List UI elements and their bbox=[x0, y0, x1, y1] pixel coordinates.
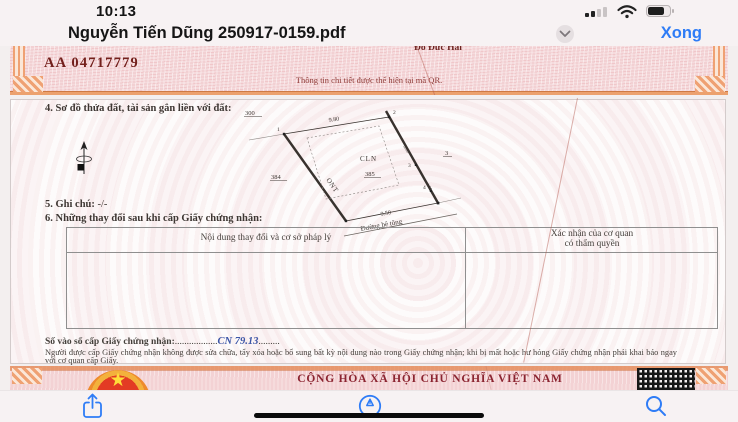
land-use-ont-label: ONT bbox=[324, 177, 340, 195]
done-button[interactable]: Xong bbox=[661, 24, 702, 43]
star-icon: ★ bbox=[109, 371, 126, 390]
signer-name: Đỗ Đức Hải bbox=[414, 46, 462, 53]
book-entry-line: Số vào sổ cấp Giấy chứng nhận:..........… bbox=[45, 336, 280, 347]
search-button[interactable] bbox=[644, 394, 668, 421]
changes-table: Nội dung thay đổi và cơ sở pháp lý Xác n… bbox=[66, 227, 718, 329]
section5-label: 5. Ghi chú: bbox=[45, 199, 95, 210]
serial-number: AA 04717779 bbox=[44, 55, 139, 72]
table-header-line bbox=[67, 252, 717, 253]
title-bar: Nguyễn Tiến Dũng 250917-0159.pdf Xong bbox=[0, 22, 738, 46]
search-icon bbox=[644, 394, 668, 418]
vertex-1-label: 1 bbox=[277, 127, 280, 133]
chevron-down-icon bbox=[559, 30, 571, 38]
section4-title: 4. Sơ đồ thửa đất, tài sản gắn liền với … bbox=[45, 103, 232, 114]
certificate-page1: Đỗ Đức Hải AA 04717779 Thông tin chi tiế… bbox=[10, 46, 728, 95]
bottom-toolbar bbox=[0, 390, 738, 422]
neighbor-parcel-right-label: 3 bbox=[445, 150, 448, 157]
corner-ornament bbox=[12, 368, 42, 384]
bottom-edge-length-label: 9.50 bbox=[380, 210, 391, 218]
battery-icon bbox=[646, 5, 676, 17]
file-menu-button[interactable] bbox=[556, 25, 574, 43]
home-indicator[interactable] bbox=[254, 413, 484, 418]
corner-ornament bbox=[696, 368, 726, 384]
book-entry-label: Số vào sổ cấp Giấy chứng nhận: bbox=[45, 337, 175, 347]
qr-code bbox=[637, 368, 695, 390]
wifi-icon bbox=[617, 5, 637, 19]
qr-note: Thông tin chi tiết được thể hiện tại mã … bbox=[10, 75, 728, 85]
document-title: Nguyễn Tiến Dũng 250917-0159.pdf bbox=[68, 24, 346, 43]
signal-icon bbox=[585, 6, 609, 17]
certificate-inner-panel: 4. Sơ đồ thửa đất, tài sản gắn liền với … bbox=[10, 99, 726, 364]
table-header-col1: Nội dung thay đổi và cơ sở pháp lý bbox=[67, 233, 465, 243]
section5-row: 5. Ghi chú: -/- bbox=[45, 199, 107, 210]
national-emblem: ★ bbox=[85, 370, 151, 390]
section5-value: -/- bbox=[98, 199, 108, 210]
section6-title: 6. Những thay đổi sau khi cấp Giấy chứng… bbox=[45, 213, 262, 224]
table-header-col2: Xác nhận của cơ quan có thẩm quyền bbox=[466, 229, 718, 249]
fold-crease-line bbox=[416, 46, 436, 95]
book-entry-value: CN 79.13 bbox=[218, 336, 259, 347]
top-edge-length-label: 9.80 bbox=[328, 116, 339, 124]
right-edge-length-b-label: 4.01 bbox=[425, 182, 433, 191]
parcel-number-label: 385 bbox=[365, 171, 375, 178]
share-button[interactable] bbox=[81, 393, 104, 422]
national-title: CỘNG HÒA XÃ HỘI CHỦ NGHĨA VIỆT NAM bbox=[200, 373, 660, 385]
land-use-cln-label: CLN bbox=[360, 155, 377, 163]
neighbor-parcel-left-label: 384 bbox=[271, 174, 282, 181]
certificate-page2: ★ CỘNG HÒA XÃ HỘI CHỦ NGHĨA VIỆT NAM bbox=[10, 366, 728, 390]
parcel-diagram: 300 9.80 1 2 3 4 384 3 ONT CLN 385 5.65 … bbox=[229, 105, 485, 241]
legal-note: Người được cấp Giấy chứng nhận không đượ… bbox=[45, 349, 677, 365]
neighbor-parcel-top-label: 300 bbox=[245, 110, 255, 117]
pdf-viewer[interactable]: Đỗ Đức Hải AA 04717779 Thông tin chi tiế… bbox=[0, 46, 738, 390]
vertex-4-label: 4 bbox=[423, 185, 426, 191]
share-icon bbox=[81, 393, 104, 419]
status-bar: 10:13 bbox=[0, 0, 738, 22]
north-arrow-icon bbox=[71, 138, 97, 180]
vertex-2-label: 2 bbox=[393, 110, 396, 116]
vertex-3-label: 3 bbox=[408, 163, 411, 169]
clock-label: 10:13 bbox=[96, 3, 136, 20]
